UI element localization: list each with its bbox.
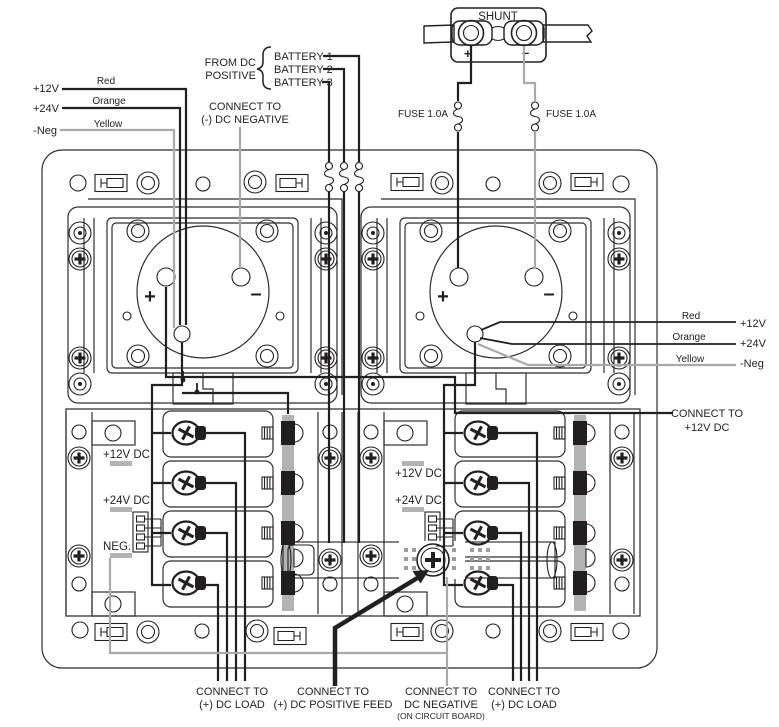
wire-left-feed xyxy=(152,342,182,585)
battery2-label: BATTERY 2 xyxy=(274,64,333,76)
legend-right-yellow: Yellow xyxy=(676,354,705,365)
panel xyxy=(42,150,657,668)
right-meter-minus: – xyxy=(543,283,554,305)
legend-right-12v: +12V xyxy=(740,318,767,330)
wire-right-red xyxy=(481,322,736,330)
shunt-label: SHUNT xyxy=(478,11,518,23)
legend-right-orange: Orange xyxy=(672,332,706,343)
top-mounting-row xyxy=(70,171,629,194)
note-negative-line2: (-) DC NEGATIVE xyxy=(201,114,289,126)
legend-left-neg: -Neg xyxy=(33,125,57,137)
note-12v-line1: CONNECT TO xyxy=(671,408,744,420)
legend-right-red: Red xyxy=(682,311,700,322)
right-terminals-24v: +24V DC xyxy=(395,495,442,507)
legend-left: +12V Red +24V Orange -Neg Yellow xyxy=(33,76,126,137)
legend-left-orange: Orange xyxy=(92,96,126,107)
legend-right-24v: +24V xyxy=(740,338,767,350)
fuse-positive-icon xyxy=(454,102,463,131)
battery-monitor-wiring-diagram: SHUNT + – FUSE 1.0A FUSE 1.0A +12V xyxy=(0,0,779,727)
bus-bar-left xyxy=(424,25,454,43)
left-terminals-neg: NEG. xyxy=(103,541,131,553)
wire-left-yellow xyxy=(60,130,174,328)
neg-mark xyxy=(110,553,132,558)
brace-icon xyxy=(257,47,271,89)
left-meter-plus: + xyxy=(144,286,156,308)
bus-bar-right xyxy=(543,25,592,42)
shunt-negative-lug xyxy=(512,21,537,46)
bottom-labels: CONNECT TO (+) DC LOAD CONNECT TO (+) DC… xyxy=(196,686,561,721)
right-meter-plus: + xyxy=(437,286,449,308)
right-terminals-12v: +12V DC xyxy=(395,468,442,480)
wiring-diagram: SHUNT + – FUSE 1.0A FUSE 1.0A +12V xyxy=(0,0,779,727)
wire-battery3 xyxy=(322,82,329,543)
battery2-fuse-icon xyxy=(340,163,349,192)
fuse-left-label: FUSE 1.0A xyxy=(398,109,448,120)
bottom-mounting-row xyxy=(72,620,629,645)
left-meter-minus: – xyxy=(250,283,261,305)
left-terminals-24v: +24V DC xyxy=(103,495,150,507)
load-right-line2: (+) DC LOAD xyxy=(491,699,557,711)
legend-left-12v: +12V xyxy=(33,83,60,95)
fuse-right-label: FUSE 1.0A xyxy=(546,109,596,120)
load-left-line1: CONNECT TO xyxy=(196,686,269,698)
note-12v: CONNECT TO +12V DC xyxy=(671,408,744,434)
negative-line3: (ON CIRCUIT BOARD) xyxy=(397,711,485,721)
positive-feed-line2: (+) DC POSITIVE FEED xyxy=(274,699,393,711)
negative-line1: CONNECT TO xyxy=(405,686,478,698)
legend-left-red: Red xyxy=(97,76,115,87)
shunt-assembly: SHUNT + – xyxy=(424,8,592,62)
battery3-label: BATTERY 3 xyxy=(274,77,333,89)
note-12v-line2: +12V DC xyxy=(685,422,730,434)
source-line1: FROM DC xyxy=(205,57,256,69)
wire-left-orange xyxy=(62,108,180,325)
wire-right-t4 xyxy=(491,585,513,681)
left-meter-module xyxy=(68,199,342,404)
source-line2: POSITIVE xyxy=(205,70,256,82)
legend-right-neg: -Neg xyxy=(740,358,764,370)
load-left-line2: (+) DC LOAD xyxy=(199,699,265,711)
note-negative-line1: CONNECT TO xyxy=(209,101,282,113)
battery1-label: BATTERY 1 xyxy=(274,51,333,63)
legend-left-yellow: Yellow xyxy=(94,119,123,130)
right-meter-module xyxy=(361,199,635,404)
negative-line2: DC NEGATIVE xyxy=(404,699,478,711)
battery3-fuse-icon xyxy=(325,163,334,192)
battery1-fuse-icon xyxy=(355,163,364,192)
legend-right: Red +12V Orange +24V Yellow -Neg xyxy=(672,311,766,370)
fuse-negative-icon xyxy=(531,102,540,131)
wire-bottom-negative xyxy=(110,558,447,686)
source-block: FROM DC POSITIVE BATTERY 1 BATTERY 2 BAT… xyxy=(205,47,333,89)
wire-battery2 xyxy=(323,69,344,543)
load-right-line1: CONNECT TO xyxy=(488,686,561,698)
left-terminals-12v: +12V DC xyxy=(103,449,150,461)
positive-feed-line1: CONNECT TO xyxy=(297,686,370,698)
wire-shunt-positive xyxy=(458,46,471,268)
note-negative: CONNECT TO (-) DC NEGATIVE xyxy=(201,101,289,126)
legend-left-24v: +24V xyxy=(33,103,60,115)
shunt-positive-lug xyxy=(459,21,484,46)
